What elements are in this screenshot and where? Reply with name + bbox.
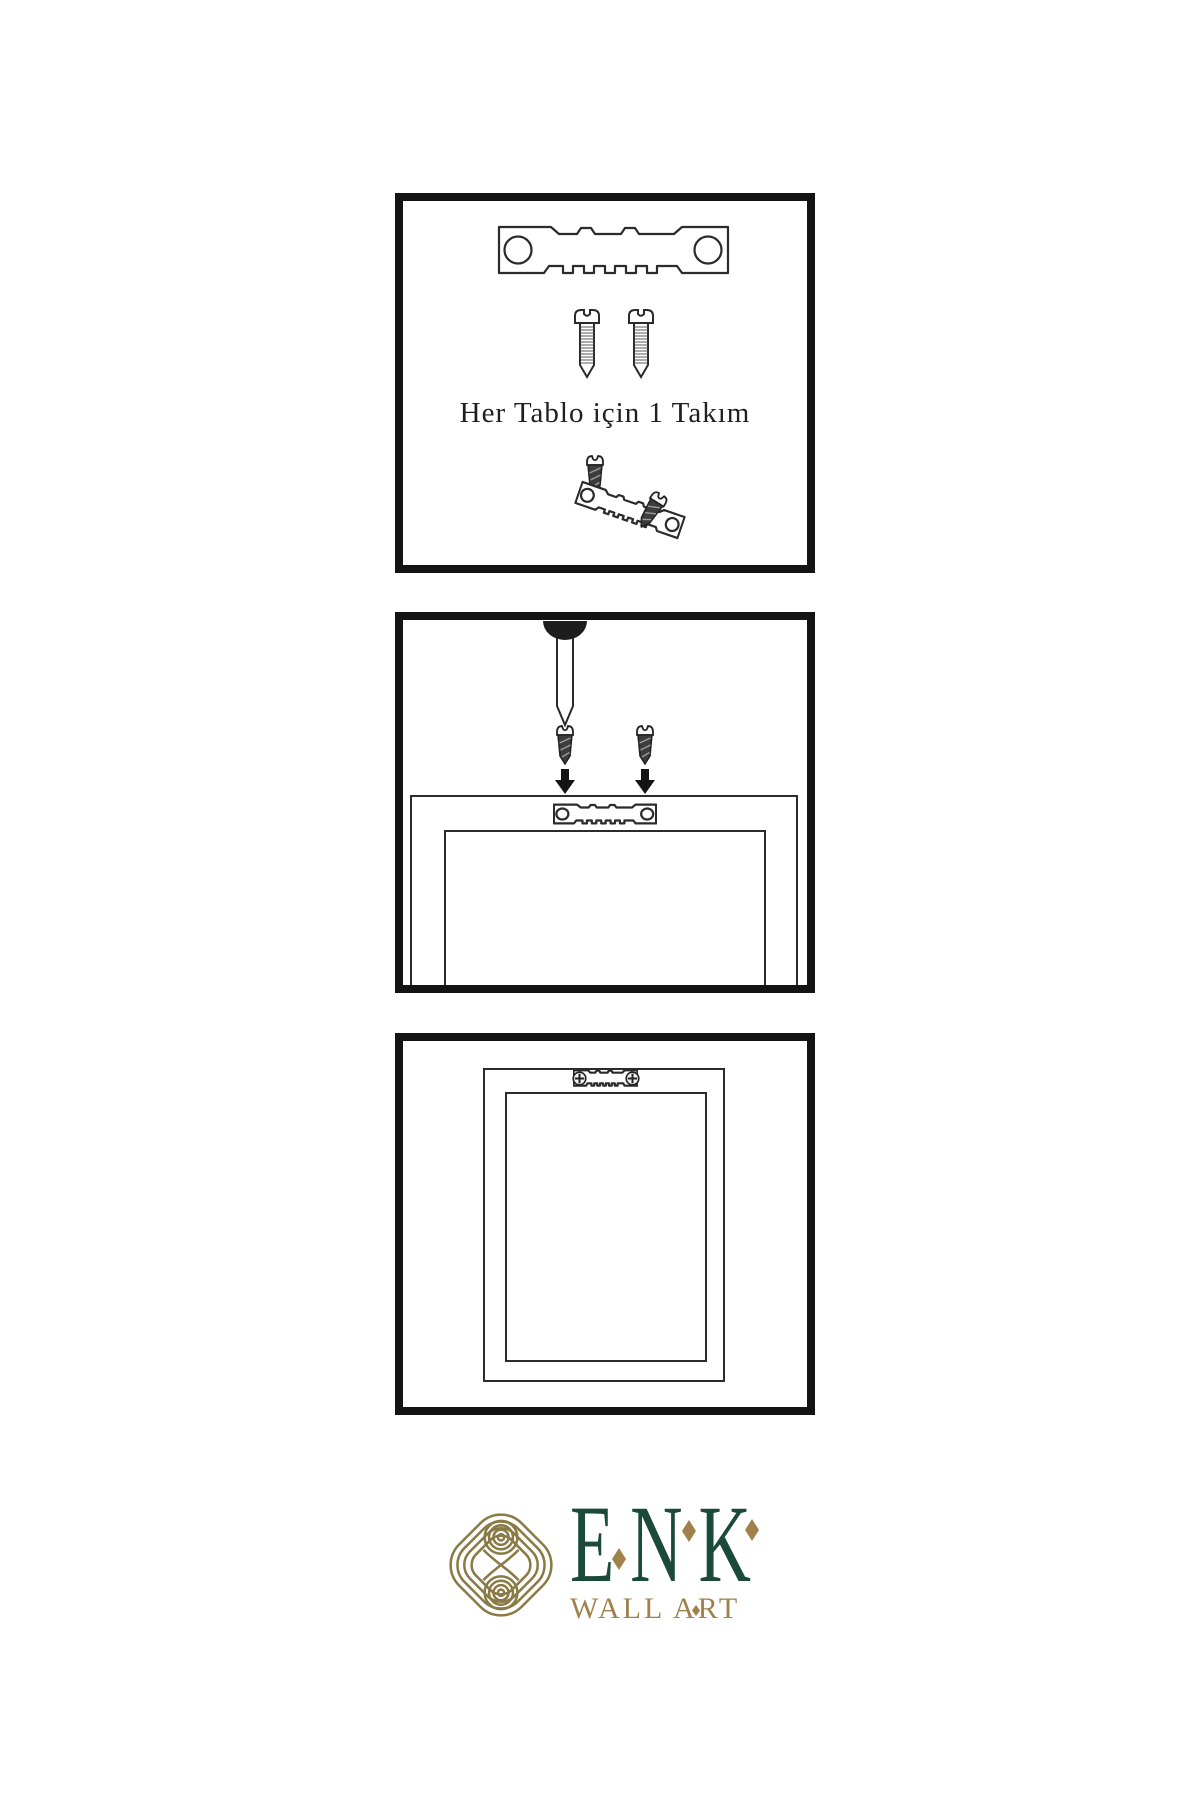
diamond-accent-icon — [745, 1519, 759, 1541]
screw-icon — [571, 306, 603, 381]
brand-knot-icon — [438, 1500, 564, 1630]
inner-frame-outline — [505, 1092, 707, 1362]
screw-icon — [625, 306, 657, 381]
panel-wall-mounting — [395, 612, 815, 993]
sawtooth-hanger-icon — [553, 803, 657, 825]
panel-mounted-frame — [395, 1033, 815, 1415]
tilted-sawtooth-hanger-icon — [574, 480, 686, 540]
phillips-screw-head-icon — [572, 1071, 587, 1086]
diamond-accent-icon — [682, 1520, 696, 1542]
inner-frame-outline — [444, 830, 766, 993]
phillips-screw-head-icon — [625, 1071, 640, 1086]
down-arrow-icon — [634, 769, 656, 795]
panel-hardware-kit: Her Tablo için 1 Takım — [395, 193, 815, 573]
kit-caption: Her Tablo için 1 Takım — [403, 397, 807, 430]
brand-subtitle: WALL ART — [570, 1592, 740, 1626]
sawtooth-hanger-icon — [497, 223, 730, 277]
dark-screw-icon — [634, 723, 656, 765]
down-arrow-icon — [554, 769, 576, 795]
instruction-sheet: { "sheet": { "background": "#ffffff", "i… — [0, 0, 1200, 1800]
diamond-accent-icon — [692, 1605, 700, 1616]
brand-wordmark: ENK — [570, 1489, 767, 1599]
wall-nail-icon — [542, 620, 588, 728]
diamond-accent-icon — [612, 1548, 626, 1570]
dark-screw-icon — [554, 723, 576, 765]
